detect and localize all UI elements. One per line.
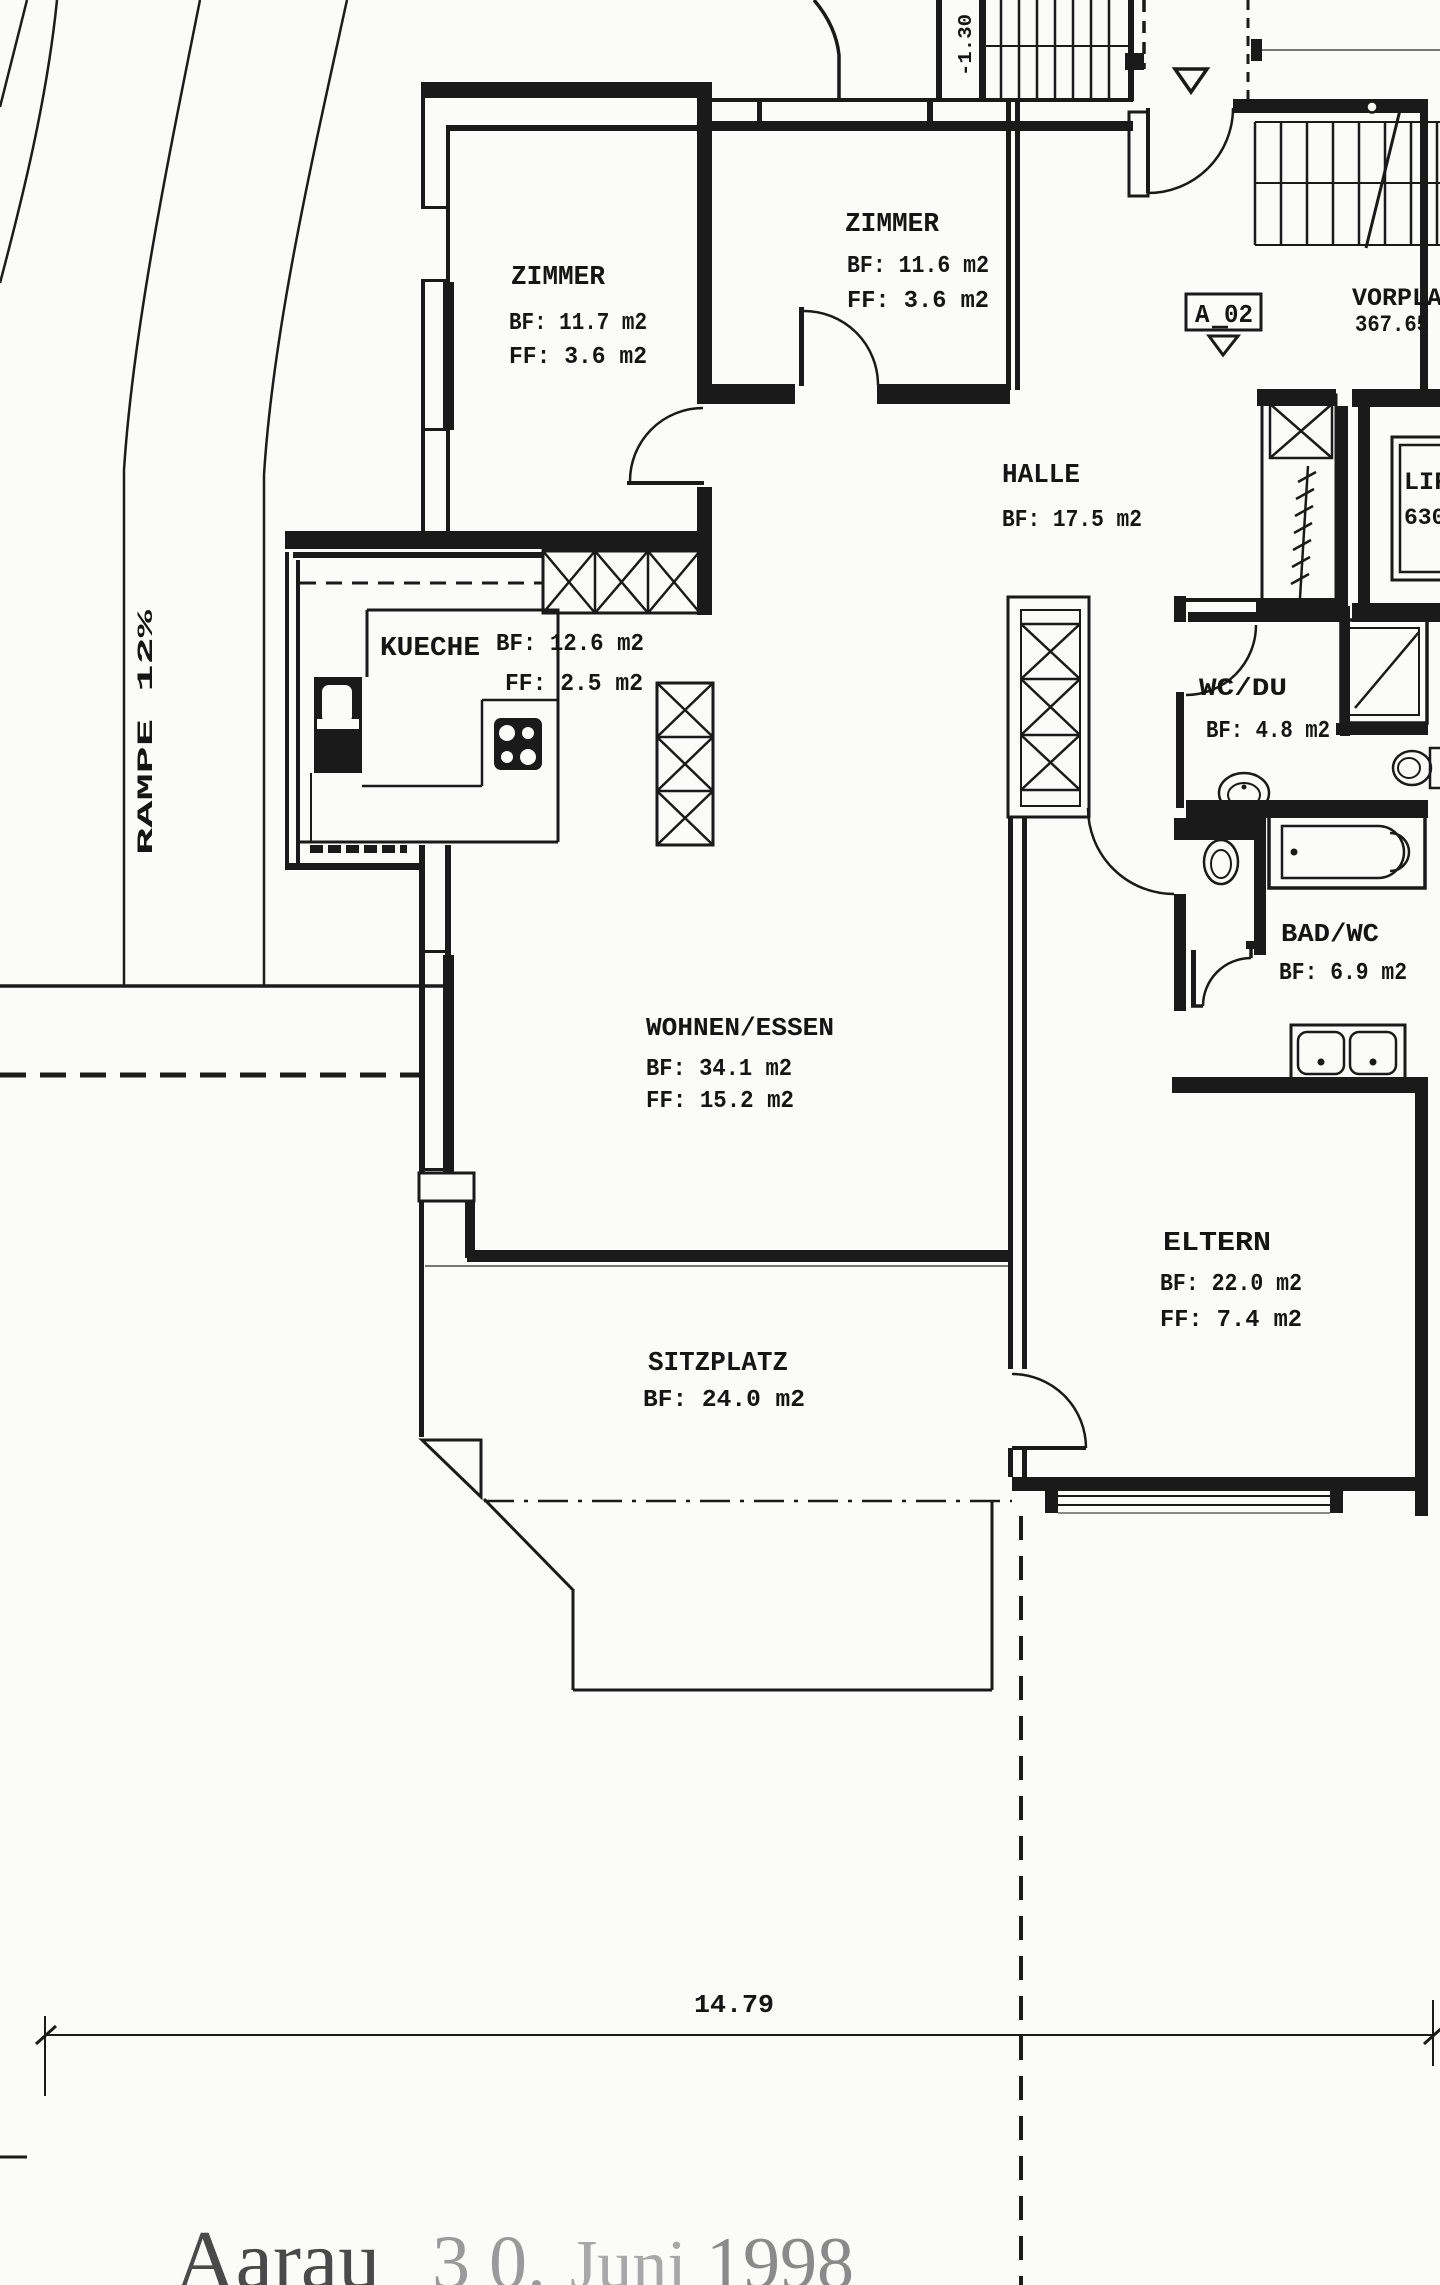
svg-text:Aarau: Aarau: [175, 2214, 380, 2285]
svg-text:BAD/WC: BAD/WC: [1281, 919, 1379, 949]
svg-text:ZIMMER: ZIMMER: [511, 263, 606, 293]
svg-text:BF: 11.6 m2: BF: 11.6 m2: [847, 253, 989, 280]
svg-text:BF: 17.5 m2: BF: 17.5 m2: [1002, 507, 1142, 534]
svg-text:ELTERN: ELTERN: [1163, 1229, 1271, 1259]
svg-text:BF: 4.8 m2: BF: 4.8 m2: [1206, 718, 1330, 745]
svg-text:1998: 1998: [706, 2223, 854, 2285]
svg-text:BF: 22.0 m2: BF: 22.0 m2: [1160, 1271, 1302, 1298]
svg-text:FF: 3.6 m2: FF: 3.6 m2: [509, 344, 647, 371]
svg-text:-1.30: -1.30: [955, 14, 977, 76]
svg-text:BF: 6.9 m2: BF: 6.9 m2: [1279, 960, 1407, 987]
svg-text:BF: 24.0 m2: BF: 24.0 m2: [643, 1387, 805, 1414]
svg-text:3 0.: 3 0.: [432, 2221, 546, 2285]
svg-text:HALLE: HALLE: [1002, 461, 1080, 491]
svg-text:367.65: 367.65: [1355, 312, 1429, 338]
svg-text:LIFT: LIFT: [1404, 468, 1440, 497]
svg-text:A 02: A 02: [1195, 300, 1253, 330]
svg-text:FF: 15.2 m2: FF: 15.2 m2: [646, 1088, 794, 1115]
svg-text:14.79: 14.79: [694, 1990, 774, 2020]
svg-text:VORPLAT: VORPLAT: [1352, 284, 1440, 313]
svg-text:FF: 7.4 m2: FF: 7.4 m2: [1160, 1307, 1302, 1334]
svg-text:ZIMMER: ZIMMER: [845, 210, 940, 240]
svg-text:RAMPE 12%: RAMPE 12%: [134, 608, 159, 855]
svg-text:KUECHE: KUECHE: [380, 634, 480, 664]
svg-text:FF: 3.6 m2: FF: 3.6 m2: [847, 288, 989, 315]
svg-text:Juni: Juni: [570, 2227, 687, 2285]
svg-text:630.: 630.: [1404, 505, 1440, 531]
svg-text:BF: 11.7 m2: BF: 11.7 m2: [509, 310, 647, 337]
svg-text:WC/DU: WC/DU: [1199, 674, 1287, 703]
svg-text:BF: 12.6 m2: BF: 12.6 m2: [496, 631, 644, 658]
svg-text:BF: 34.1 m2: BF: 34.1 m2: [646, 1056, 792, 1083]
svg-text:WOHNEN/ESSEN: WOHNEN/ESSEN: [646, 1013, 834, 1043]
svg-text:FF: 2.5 m2: FF: 2.5 m2: [505, 671, 643, 698]
svg-text:SITZPLATZ: SITZPLATZ: [648, 1349, 788, 1379]
